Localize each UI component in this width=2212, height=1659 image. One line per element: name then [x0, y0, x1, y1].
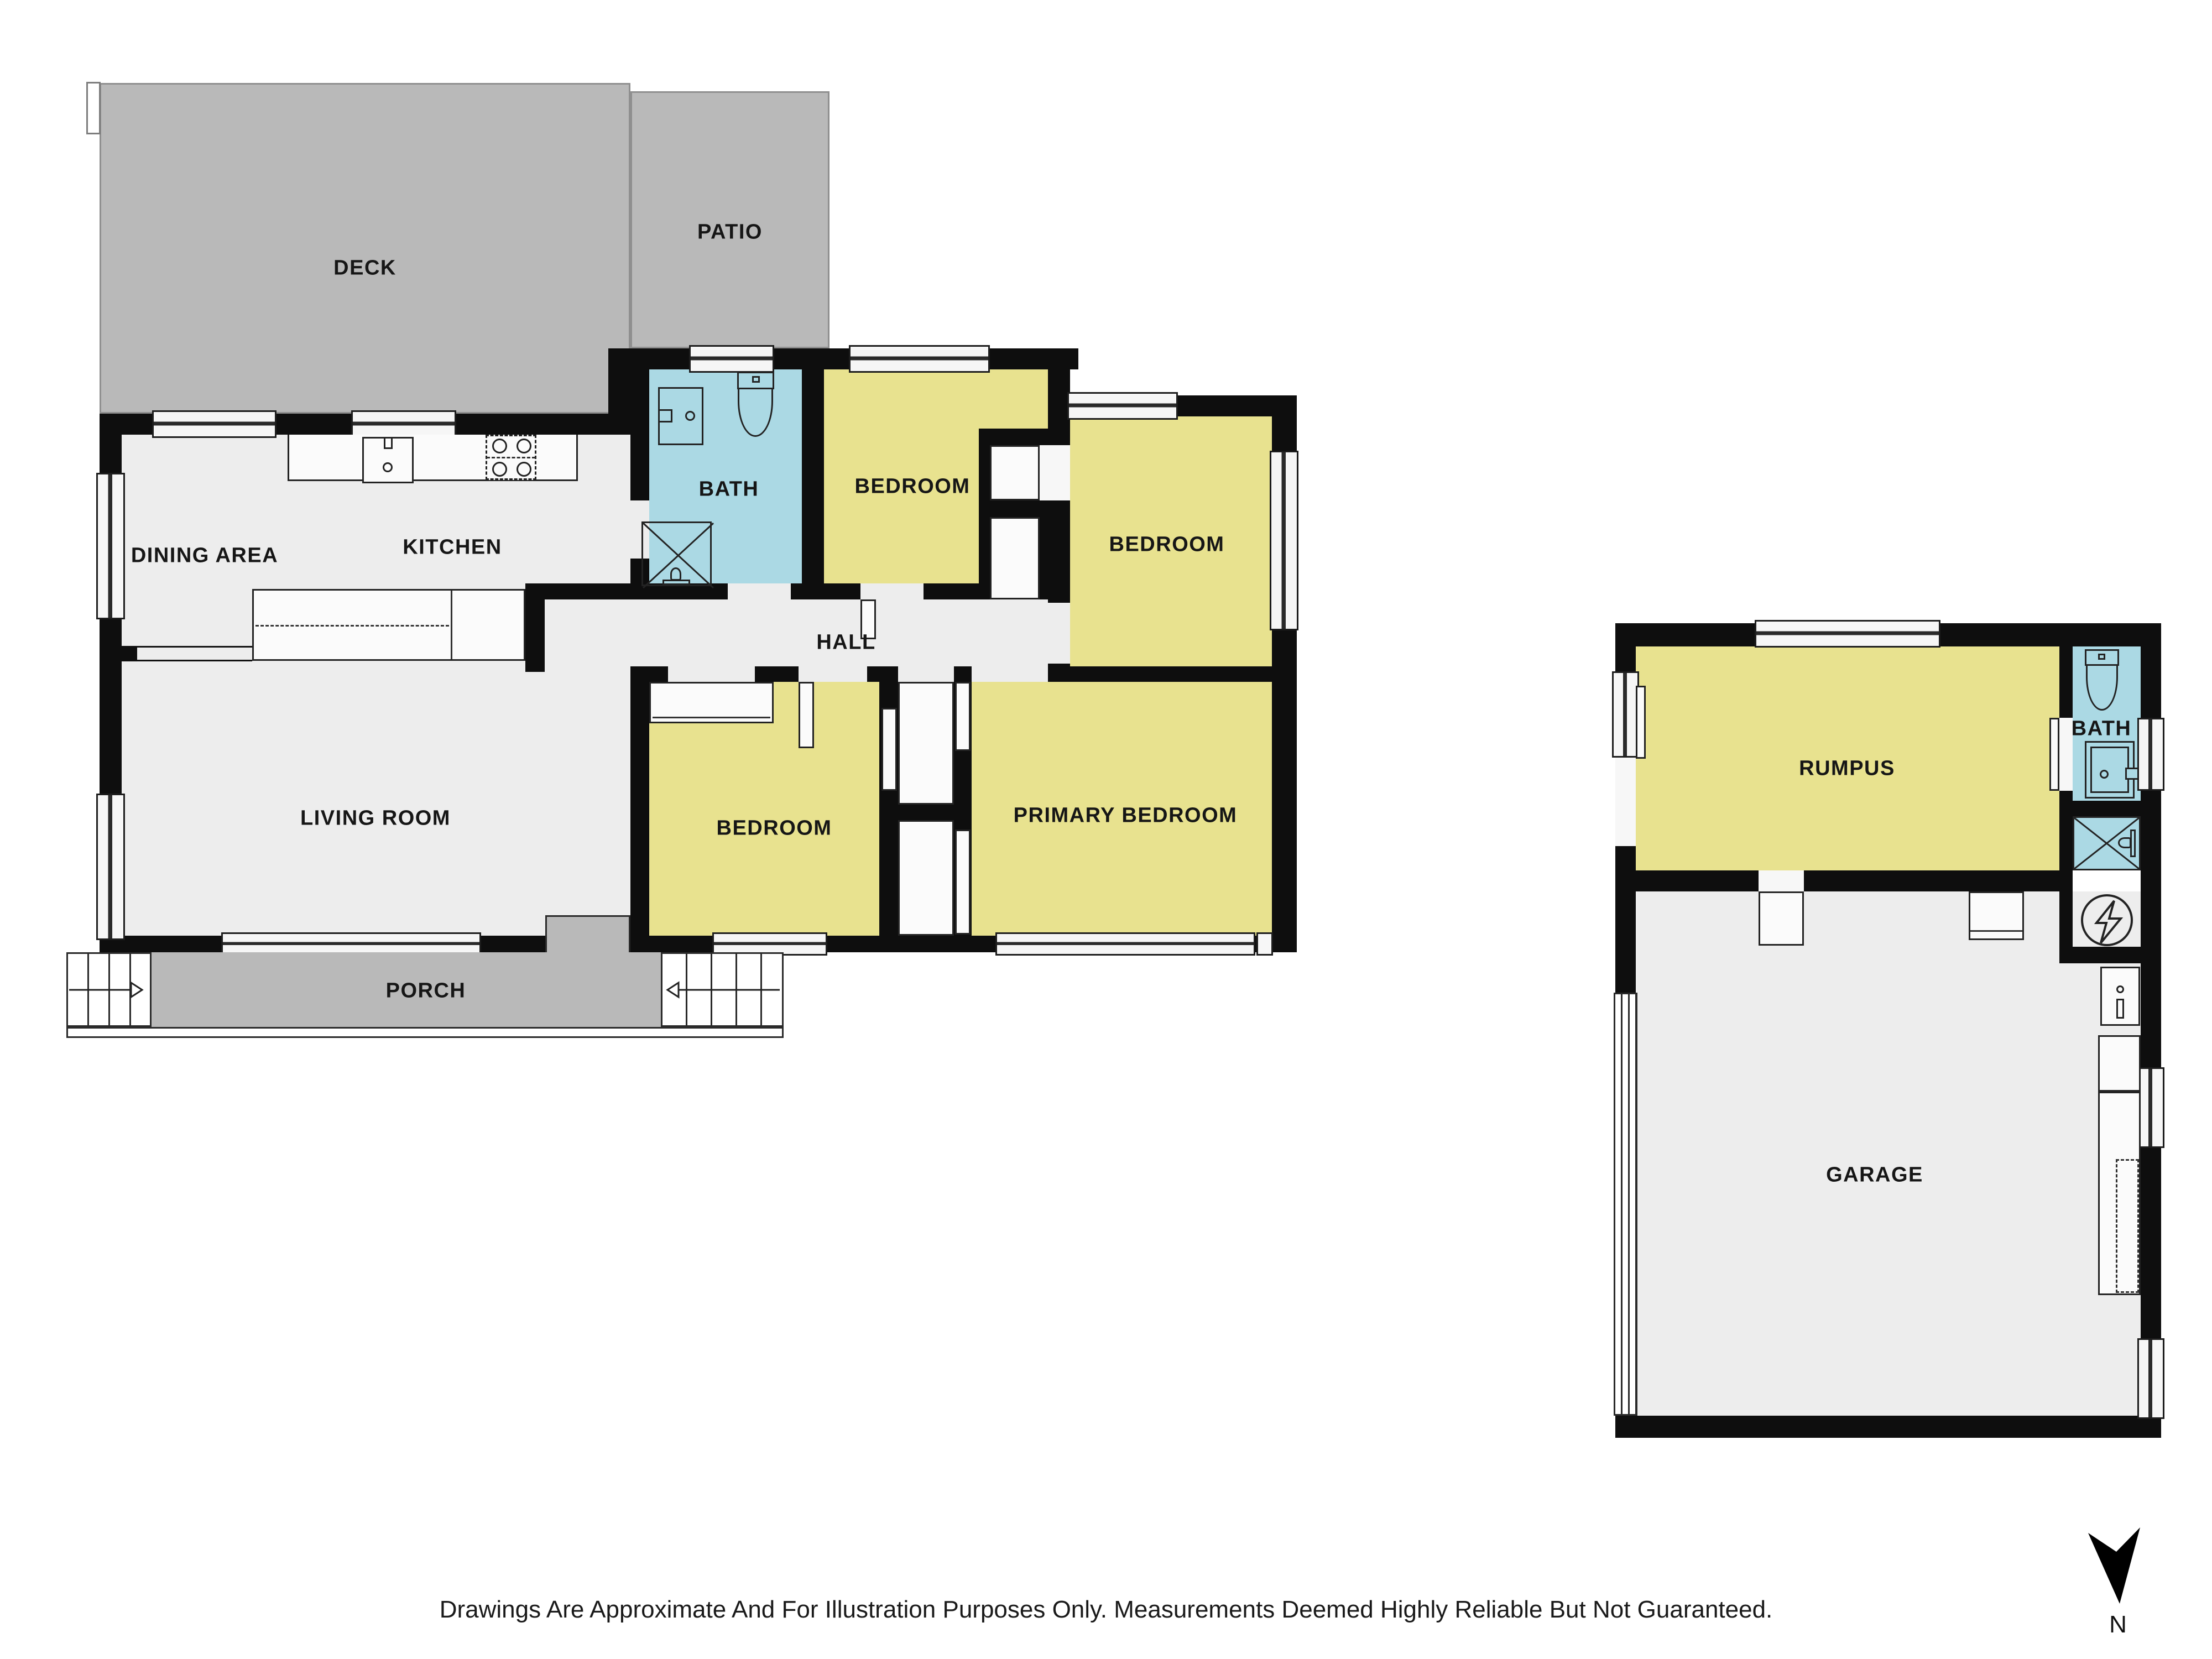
electrical-meter-icon: [2081, 894, 2133, 946]
disclaimer-text: Drawings Are Approximate And For Illustr…: [440, 1596, 1773, 1624]
vanity-drain: [685, 411, 695, 421]
door-leaf-primary: [955, 682, 971, 751]
closet-a: [990, 445, 1040, 500]
wall-bath-east: [802, 348, 824, 583]
window-bath-north: [689, 345, 774, 373]
door-bedroom-mid: [799, 666, 867, 682]
garage-cabinet-shelf: [1970, 930, 2022, 932]
kitchen-sink-drain: [383, 462, 393, 472]
opening-linen-closet: [898, 666, 954, 682]
window-primary-south: [995, 932, 1255, 956]
g-wall-rumpus-south-b: [1804, 870, 2073, 891]
bath2-label: BATH: [2072, 717, 2132, 741]
closet-a-front: [1040, 445, 1070, 500]
burner-2: [517, 439, 531, 453]
wall-divider-stub: [122, 646, 137, 661]
window-garage-east-2: [2137, 1338, 2164, 1419]
bedroom-right-label: BEDROOM: [1109, 533, 1225, 557]
door-leaf-bedroom-mid: [799, 682, 814, 748]
bedroom-top-label: BEDROOM: [855, 475, 971, 499]
wall-bed12-a: [1048, 348, 1070, 445]
island-bench-divider: [451, 591, 452, 659]
closet-b: [990, 517, 1040, 599]
window-dining-west: [96, 473, 125, 619]
window-rumpus-west: [1612, 671, 1639, 758]
window-bedroom-right-east: [1270, 451, 1298, 630]
door-leaf-rumpus-west: [1636, 686, 1646, 759]
wall-closet-divider: [898, 805, 954, 820]
north-arrow-icon: [2079, 1521, 2151, 1615]
kitchen-label: KITCHEN: [403, 536, 502, 560]
wall-hall-north-b: [791, 583, 860, 599]
door-primary: [972, 666, 1048, 682]
primary-label: PRIMARY BEDROOM: [1014, 804, 1238, 828]
door-bedroom-right: [1048, 603, 1070, 664]
living-label: LIVING ROOM: [300, 807, 451, 831]
burner-4: [517, 462, 531, 477]
laundry-tub-tap: [2116, 999, 2124, 1019]
living-dining-floor: [122, 435, 630, 936]
door-leaf-bed3-side: [881, 708, 897, 791]
door-rumpus-west: [1615, 758, 1636, 846]
floor-plan: DECK PATIO DINING AREA KITCHEN BATH BEDR…: [0, 0, 2212, 1659]
wall-kitchen-south: [525, 583, 630, 599]
deck-area: [100, 83, 630, 414]
workbench-dashed-zone: [2116, 1159, 2139, 1293]
g-wall-bath2-divider: [2059, 801, 2141, 816]
island-bench-dash: [255, 625, 449, 627]
wall-top-mid: [608, 348, 1078, 369]
patio-label: PATIO: [697, 221, 763, 244]
porch-base-line: [66, 1027, 784, 1038]
burner-3: [492, 462, 507, 477]
linen-closet-lower: [898, 820, 954, 936]
toilet2-button: [2098, 654, 2105, 660]
vanity-tap: [658, 409, 672, 422]
dining-label: DINING AREA: [131, 544, 278, 568]
wall-hall-south-e: [1048, 666, 1297, 682]
wall-step-west: [608, 348, 630, 435]
door-bath-to-hall: [728, 583, 791, 599]
bedroom-mid-closet-track: [653, 717, 770, 718]
kitchen-sink-faucet: [384, 437, 393, 449]
shower-rose: [670, 567, 681, 581]
porch-label: PORCH: [386, 979, 466, 1003]
wall-bath-west-upper: [630, 348, 649, 500]
wall-bed3-west: [630, 666, 649, 952]
cased-opening-dining-living: [137, 646, 252, 661]
g-wall-rumpus-south-a: [1615, 870, 1759, 891]
toilet-button: [752, 376, 760, 383]
window-kitchen-north: [351, 410, 456, 438]
vanity2-drain: [2100, 770, 2109, 779]
g-wall-bottom: [1615, 1416, 2161, 1438]
window-garage-east-1: [2137, 1067, 2164, 1148]
door-leaf-bath2: [2049, 718, 2059, 791]
deck-edge-post: [86, 82, 101, 134]
wall-bed12-b: [1048, 500, 1070, 603]
door-leaf-closet-lower: [955, 830, 971, 935]
bath-label: BATH: [699, 478, 759, 502]
g-wall-meter-stub: [2059, 891, 2073, 947]
window-primary-south-cap: [1256, 932, 1273, 956]
g-wall-bath2-west-a: [2059, 646, 2073, 718]
wall-kitchen-stub: [525, 599, 545, 672]
window-bath2-east: [2137, 718, 2164, 791]
hall-label: HALL: [816, 631, 875, 655]
window-dining-north-1: [152, 410, 276, 438]
window-rumpus-north: [1755, 620, 1940, 648]
stair-arrow-right-icon: [69, 982, 144, 998]
laundry-tub-drain: [2116, 985, 2124, 993]
deck-label: DECK: [333, 257, 397, 280]
garage-floor: [1636, 891, 2141, 1416]
opening-hall-closet: [668, 666, 755, 682]
wall-bed3-east: [879, 666, 898, 936]
workbench-upper: [2098, 1035, 2141, 1092]
door-bedroom-top: [860, 583, 924, 599]
window-bedroom-top-north: [849, 345, 990, 373]
garage-label: GARAGE: [1826, 1164, 1923, 1187]
bedroom-mid-label: BEDROOM: [717, 817, 832, 841]
window-bedroom-right-north: [1067, 392, 1178, 420]
g-wall-meter-south: [2059, 947, 2141, 963]
vanity2-inner: [2090, 747, 2129, 793]
shower2-rose: [2118, 837, 2131, 848]
linen-closet-upper: [898, 682, 954, 805]
stair-arrow-left-icon: [666, 982, 780, 998]
door-rumpus-to-garage: [1759, 870, 1804, 891]
wall-hall-south-b: [755, 666, 799, 682]
rumpus-label: RUMPUS: [1799, 757, 1895, 781]
patio-area: [630, 91, 830, 348]
garage-cabinet: [1969, 891, 2024, 940]
door-leaf-rumpus-garage: [1759, 891, 1804, 946]
stove-divider: [487, 457, 535, 458]
door-bath2: [2059, 718, 2073, 791]
entry-landing: [545, 915, 630, 952]
window-living-west: [96, 794, 125, 940]
north-label: N: [2109, 1611, 2127, 1639]
garage-door-icon: [1614, 993, 1637, 1416]
burner-1: [492, 439, 507, 453]
